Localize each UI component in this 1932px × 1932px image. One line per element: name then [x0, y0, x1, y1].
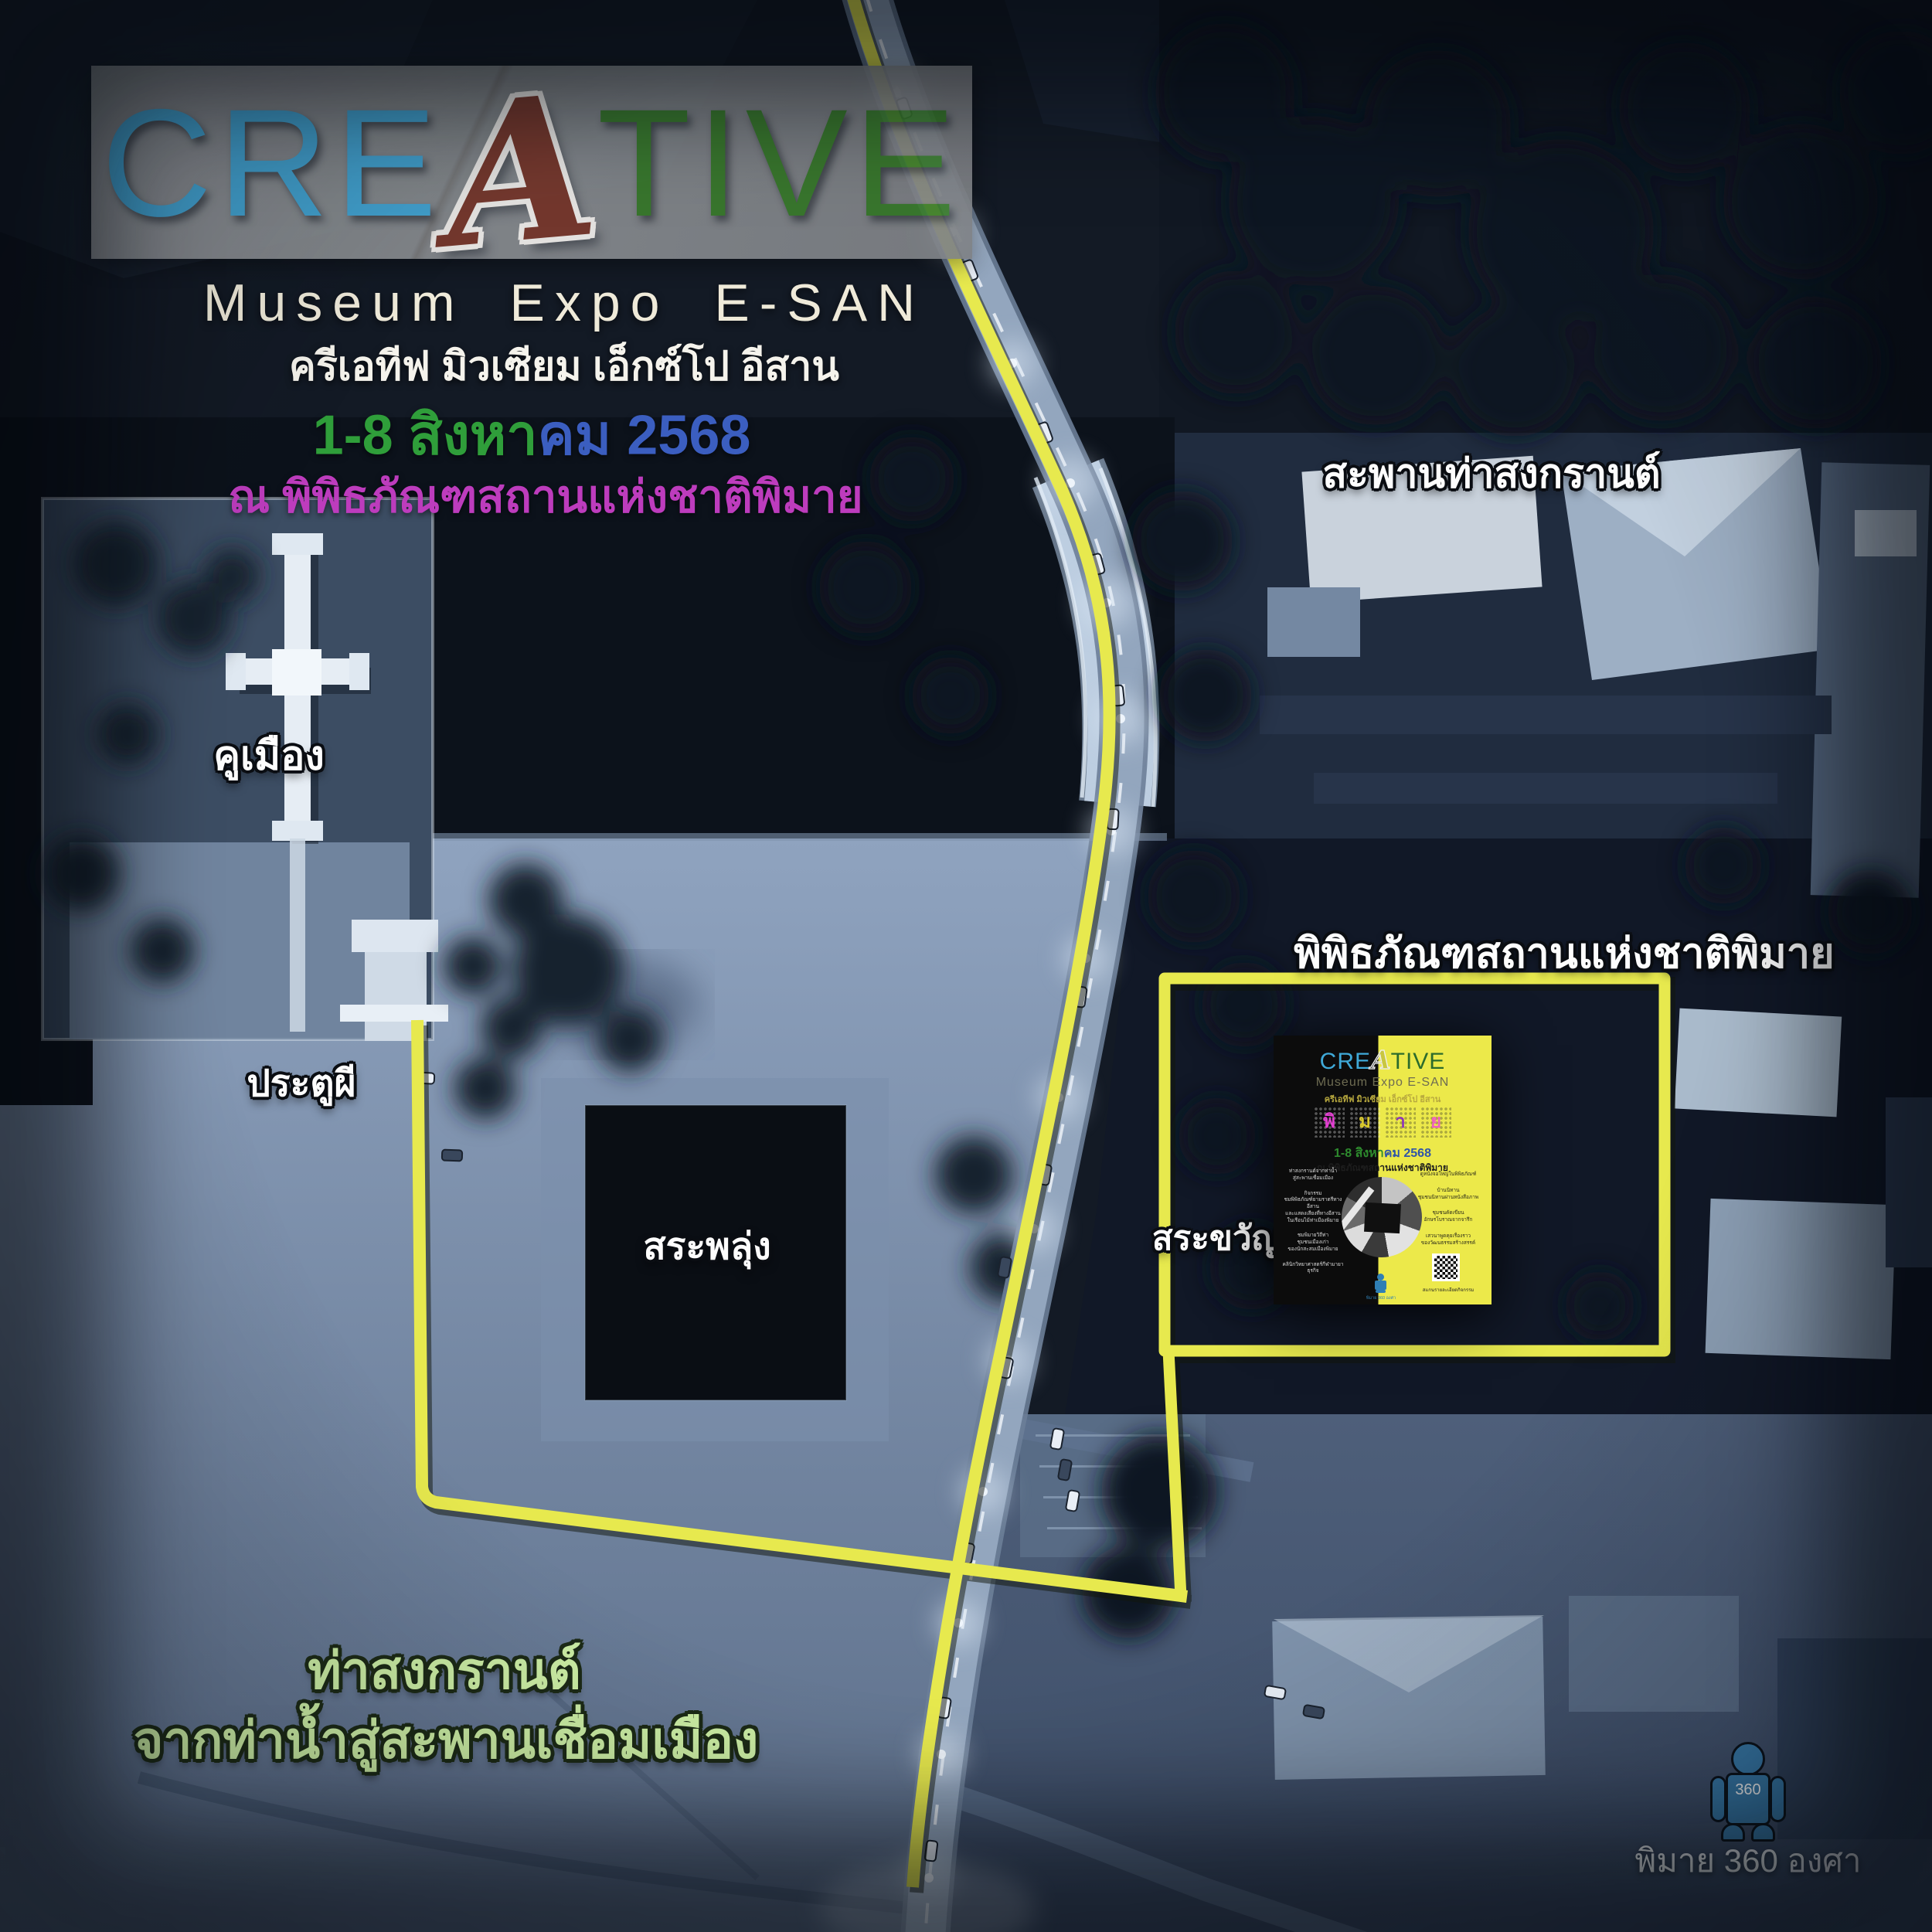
event-title-english: Museum Expo E-SAN	[203, 273, 925, 333]
event-venue: ณ พิพิธภัณฑสถานแห่งชาติพิมาย	[228, 461, 862, 532]
poster-date-part2: คม 2568	[1384, 1147, 1431, 1160]
poster-mini-360-label: พิมาย 360 องศา	[1348, 1295, 1414, 1301]
mini-figure-feet	[1376, 1290, 1386, 1293]
poster-logo-tive: TIVE	[1391, 1049, 1446, 1074]
photo-pond-shape	[1364, 1202, 1401, 1233]
figure-body: 360	[1726, 1773, 1770, 1825]
poster-aerial-photo-circle	[1342, 1177, 1422, 1257]
figure-arm-right	[1770, 1776, 1786, 1822]
poster-program-item: ชุมชนคัดเขียน อักษรโบราณจากจารึก	[1411, 1210, 1485, 1224]
mini-figure-body	[1375, 1281, 1386, 1290]
poster-program-item: เสวนาพูดคุยเรื่องราว ของวัฒนธรรมสร้างสรร…	[1411, 1233, 1485, 1247]
event-poster-inset: CREATIVE Museum Expo E-SAN ครีเอทีฟ มิวเ…	[1274, 1036, 1492, 1304]
phimai-tile-3: า	[1385, 1107, 1416, 1138]
label-phimai-360: พิมาย 360 องศา	[1635, 1835, 1862, 1886]
poster-program-item: คลินิกวิทยาศาสตร์กีฬามายาธุรกิจ	[1280, 1262, 1346, 1276]
phimai-360-figure-icon: 360	[1711, 1742, 1785, 1844]
poster-logo: CREATIVE	[1274, 1045, 1492, 1075]
label-ghost-gate: ประตูผี	[247, 1054, 355, 1113]
phimai-tile-1: พิ	[1314, 1107, 1345, 1138]
label-songkran-bridge: สะพานท่าสงกรานต์	[1322, 441, 1660, 505]
phimai-tile-4: ย	[1420, 1107, 1451, 1138]
poster-program-item: ชมพิมายวิถีท่า ชุมชนเมืองเก่า ของนักสะสม…	[1280, 1233, 1346, 1253]
poster-program-item: ท่าสงกรานต์จากท่าน้ำ สู่สะพานเชื่อมเมือง	[1280, 1168, 1346, 1182]
label-songkran-pier-subtitle: จากท่าน้ำสู่สะพานเชื่อมเมือง	[134, 1700, 759, 1781]
event-title-thai: ครีเอทีฟ มิวเซียม เอ็กซ์โป อีสาน	[289, 334, 839, 398]
label-city-moat: คูเมือง	[213, 723, 324, 787]
label-phimai-national-museum: พิพิธภัณฑสถานแห่งชาติพิมาย	[1294, 920, 1835, 986]
poster-program-item: ดูหนังจอใหญ่ในพิพิธภัณฑ์	[1411, 1172, 1485, 1179]
poster-logo-a: A	[1371, 1045, 1391, 1075]
poster-title-english: Museum Expo E-SAN	[1274, 1076, 1492, 1090]
label-pond-sa-phlung: สระพลุ่ง	[643, 1217, 770, 1276]
poster-mini-360-figure-icon	[1372, 1274, 1390, 1294]
label-pond-sa-khwan: สระขวัญ	[1152, 1211, 1281, 1265]
qr-code	[1432, 1253, 1460, 1281]
logo-text-cre: CRE	[101, 75, 443, 250]
event-date-part1: 1-8 สิงหา	[313, 405, 538, 467]
mini-figure-head	[1377, 1274, 1384, 1281]
figure-arm-left	[1710, 1776, 1726, 1822]
logo-text-tive: TIVE	[597, 75, 962, 250]
poster-title-thai: ครีเอทีฟ มิวเซียม เอ็กซ์โป อีสาน	[1274, 1092, 1492, 1106]
poster-program-item: บ้านนิทาน ชุมชนนิทานผ่านหนังสือภาพ	[1411, 1188, 1485, 1202]
map-canvas: CREATIVE Museum Expo E-SAN ครีเอทีฟ มิวเ…	[0, 0, 1932, 1932]
poster-program-right-column: ดูหนังจอใหญ่ในพิพิธภัณฑ์ บ้านนิทาน ชุมชน…	[1411, 1172, 1485, 1247]
qr-caption: สแกนรายละเอียดกิจกรรม	[1403, 1286, 1493, 1294]
figure-head	[1731, 1742, 1765, 1776]
poster-program-item: กิจกรรม ชมพิพิธภัณฑ์ยามราตรีทางอีสาน และ…	[1280, 1191, 1346, 1225]
poster-date-part1: 1-8 สิงหา	[1334, 1147, 1384, 1160]
figure-360-text: 360	[1735, 1781, 1760, 1823]
poster-logo-cre: CRE	[1320, 1049, 1371, 1074]
logo-text-a: A	[435, 51, 606, 292]
phimai-tile-2: ม	[1349, 1107, 1380, 1138]
event-date-part2: คม 2568	[538, 405, 751, 467]
logo-banner: CREATIVE	[91, 66, 972, 259]
qr-modules	[1434, 1256, 1458, 1279]
poster-phimai-letter-tiles: พิ ม า ย	[1274, 1107, 1492, 1138]
poster-program-left-column: ท่าสงกรานต์จากท่าน้ำ สู่สะพานเชื่อมเมือง…	[1280, 1168, 1346, 1275]
